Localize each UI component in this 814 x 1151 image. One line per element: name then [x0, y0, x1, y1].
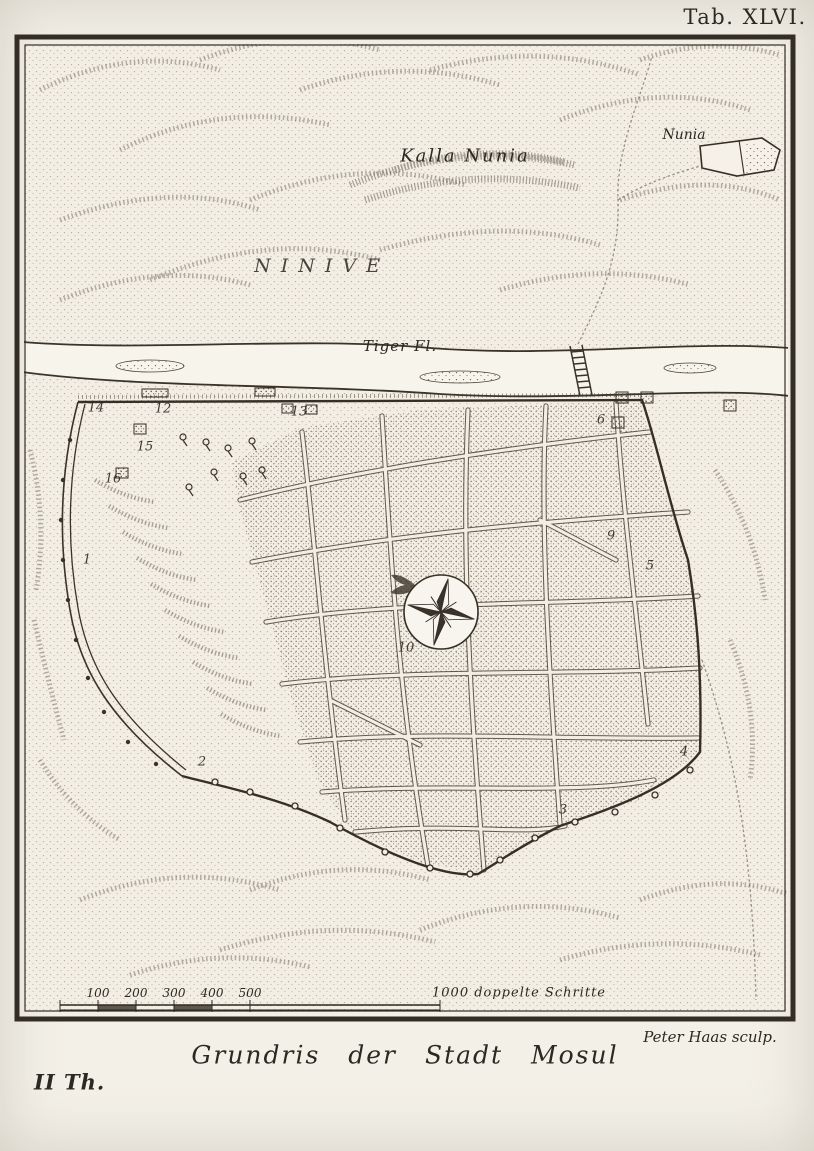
nunia-fort: [700, 138, 780, 176]
mosul-map-engraving: [0, 0, 814, 1151]
engraved-map-sheet: Tab. XLVI. Kalla Nunia Nunia NINIVE Tige…: [0, 0, 814, 1151]
